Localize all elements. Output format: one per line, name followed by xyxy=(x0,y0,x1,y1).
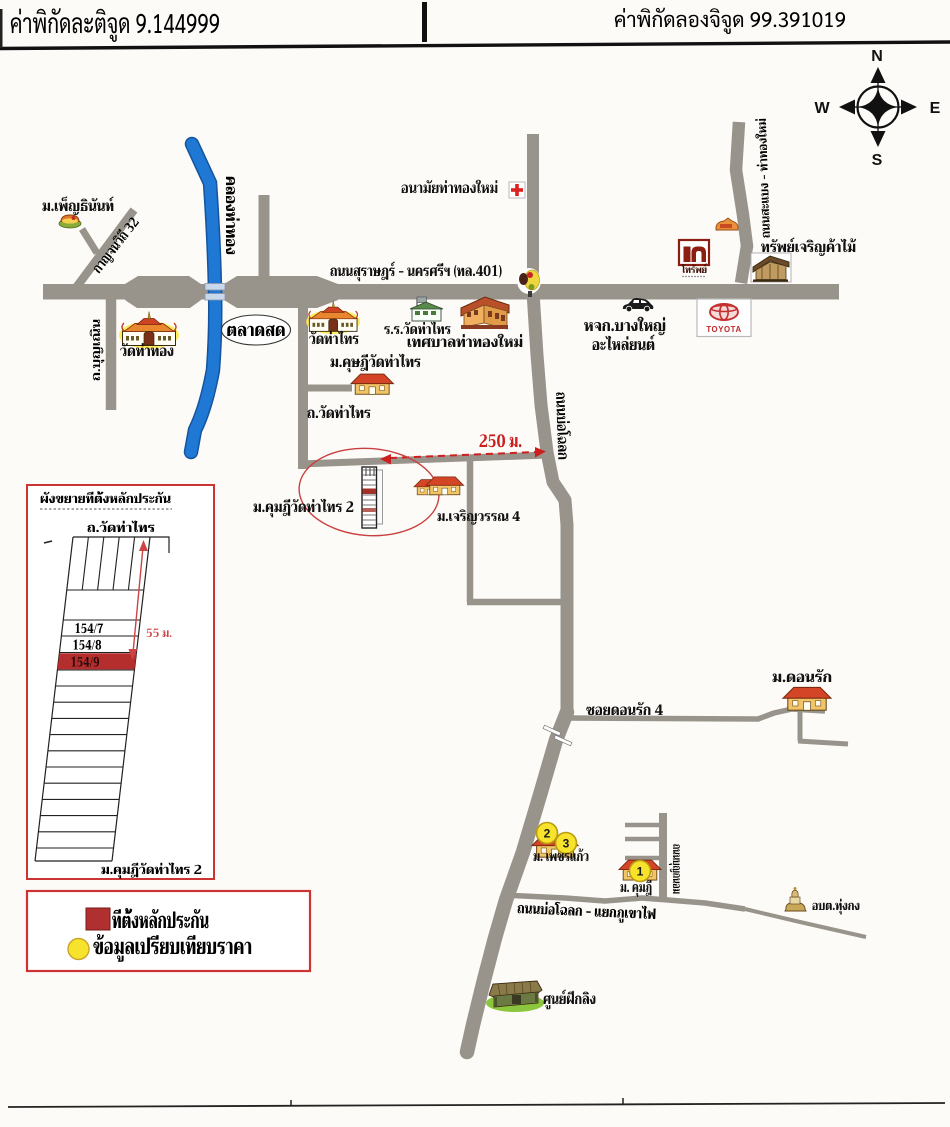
svg-text:TOYOTA: TOYOTA xyxy=(706,325,741,334)
svg-text:3: 3 xyxy=(563,837,570,851)
svg-text:N: N xyxy=(871,48,883,65)
svg-text:1: 1 xyxy=(637,865,644,879)
svg-text:W: W xyxy=(814,100,830,117)
svg-text:E: E xyxy=(930,100,941,117)
svg-text:2: 2 xyxy=(544,827,551,841)
svg-text:S: S xyxy=(872,152,883,169)
